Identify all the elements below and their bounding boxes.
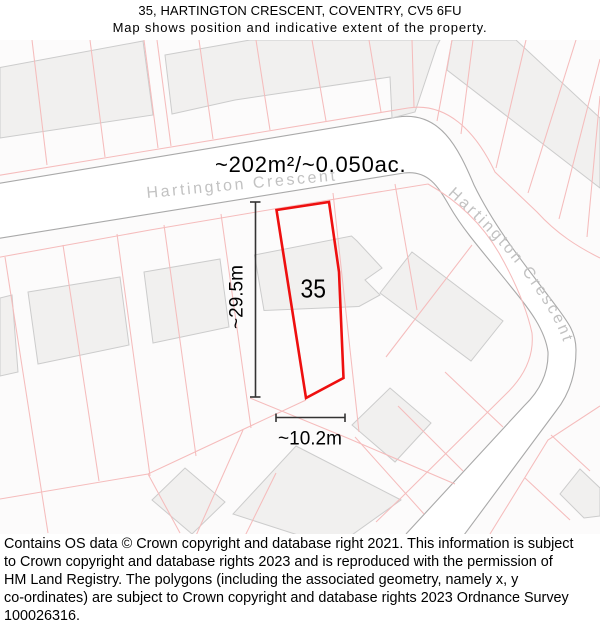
- svg-text:~202m²/~0.050ac.: ~202m²/~0.050ac.: [215, 152, 406, 177]
- svg-text:~29.5m: ~29.5m: [227, 265, 248, 329]
- svg-text:35: 35: [301, 275, 326, 304]
- svg-text:~10.2m: ~10.2m: [278, 429, 342, 450]
